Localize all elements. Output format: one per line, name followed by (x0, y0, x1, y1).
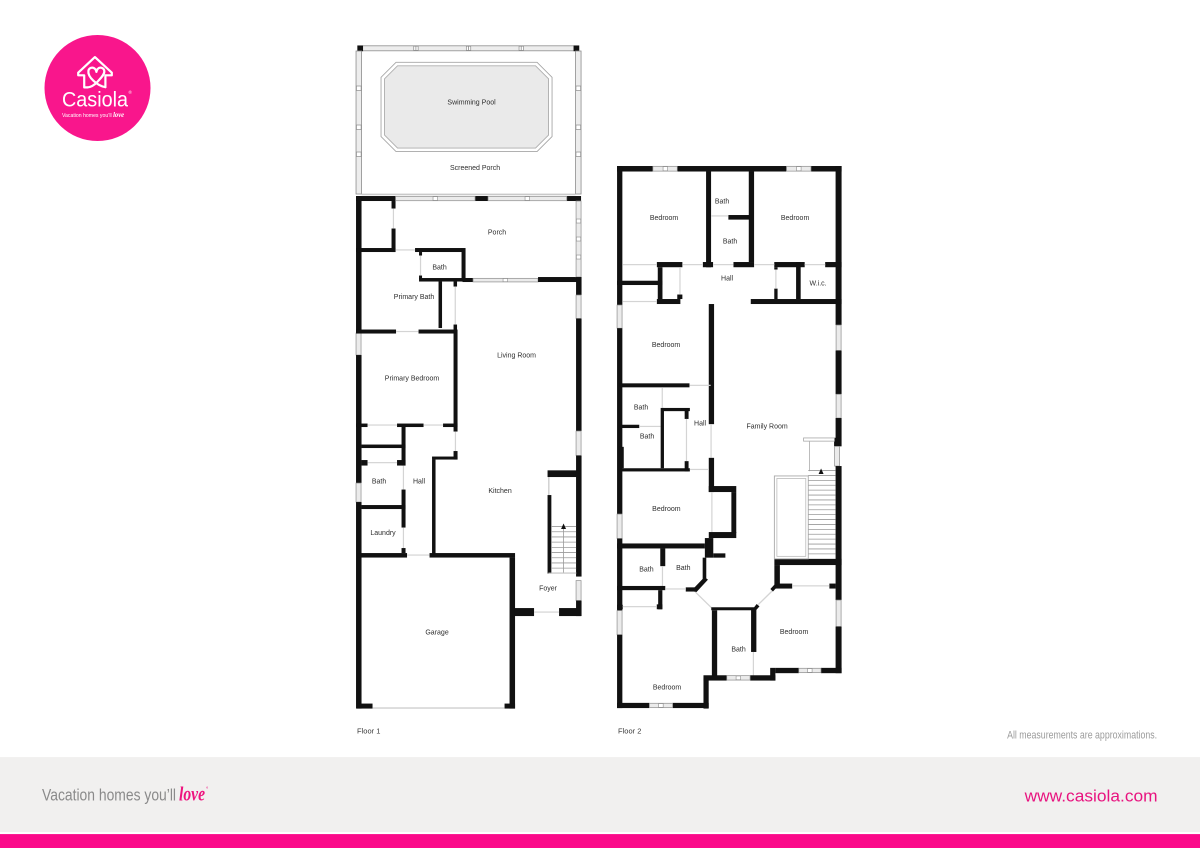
svg-text:Casiola: Casiola (62, 89, 128, 112)
svg-text:Floor 2: Floor 2 (618, 727, 641, 736)
svg-text:Laundry: Laundry (370, 530, 396, 537)
svg-text:All measurements are approxima: All measurements are approximations. (1007, 730, 1157, 742)
svg-text:Bath: Bath (676, 565, 691, 572)
svg-text:W.i.c.: W.i.c. (810, 281, 827, 288)
svg-text:Bedroom: Bedroom (652, 342, 681, 349)
svg-text:Screened Porch: Screened Porch (450, 165, 500, 172)
svg-text:Bath: Bath (723, 239, 738, 246)
svg-text:Bedroom: Bedroom (781, 215, 810, 222)
svg-text:Bath: Bath (372, 479, 387, 486)
svg-text:Living Room: Living Room (497, 353, 536, 360)
svg-text:Hall: Hall (413, 479, 426, 486)
svg-text:Floor 1: Floor 1 (357, 727, 380, 736)
svg-text:Bath: Bath (432, 265, 447, 272)
svg-text:Family Room: Family Room (746, 424, 787, 431)
svg-text:Swimming Pool: Swimming Pool (447, 100, 496, 107)
svg-text:Bath: Bath (640, 434, 655, 441)
svg-text:Bedroom: Bedroom (650, 215, 679, 222)
svg-text:Bedroom: Bedroom (780, 629, 809, 636)
svg-text:Hall: Hall (721, 276, 734, 283)
svg-text:Foyer: Foyer (539, 586, 558, 593)
svg-text:Primary Bedroom: Primary Bedroom (385, 376, 440, 383)
svg-text:Hall: Hall (694, 421, 707, 428)
svg-text:Bedroom: Bedroom (652, 506, 681, 513)
svg-text:Bath: Bath (639, 566, 654, 573)
svg-text:Porch: Porch (488, 230, 506, 237)
svg-text:Bedroom: Bedroom (653, 685, 682, 692)
svg-text:Bath: Bath (731, 646, 746, 653)
svg-text:Bath: Bath (715, 198, 730, 205)
svg-text:Primary Bath: Primary Bath (394, 294, 435, 301)
svg-text:Kitchen: Kitchen (488, 488, 511, 495)
svg-text:www.casiola.com: www.casiola.com (1024, 787, 1158, 806)
svg-text:Vacation homes you’ll: Vacation homes you’ll (42, 786, 176, 805)
svg-text:love: love (179, 785, 205, 806)
svg-text:Bath: Bath (634, 405, 649, 412)
svg-text:Garage: Garage (425, 630, 448, 637)
